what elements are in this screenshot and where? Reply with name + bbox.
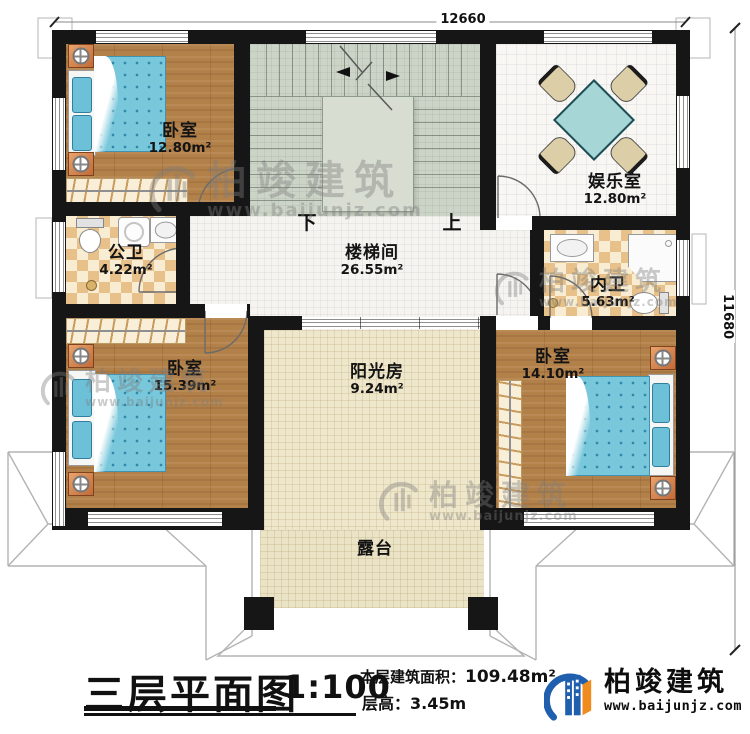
nightstand — [68, 152, 94, 176]
watermark-name: 柏竣建筑 — [85, 369, 224, 396]
terrace-apron-line — [218, 630, 524, 656]
window-left-bath — [53, 222, 65, 292]
floor-drain-icon — [86, 280, 97, 291]
plan-title: 三层平面图 — [84, 662, 299, 720]
eave-box-right — [692, 234, 706, 304]
pillow — [72, 421, 92, 459]
watermark-url: www.baijunjz.com — [539, 296, 678, 309]
floor-area-row: 本层建筑面积：109.48m² — [360, 666, 556, 687]
watermark-name: 柏竣建筑 — [539, 269, 678, 296]
floor-height-row: 层高：3.45m — [362, 690, 466, 714]
bed-mattress — [566, 376, 650, 476]
brand-url: www.baijunjz.com — [604, 698, 742, 714]
wall-sunroom-left — [248, 316, 264, 530]
nightstand — [650, 346, 676, 370]
window-top-bedroom — [96, 31, 188, 43]
dimension-ticks-top — [50, 17, 690, 27]
dimension-top-value: 12660 — [436, 12, 489, 27]
floor-area-value: 109.48m² — [465, 667, 556, 687]
room-label-sunroom: 阳光房 9.24m² — [350, 363, 404, 397]
title-underline-thin — [84, 713, 356, 716]
hallway-floor-left — [190, 216, 250, 304]
title-underline-thick — [84, 706, 276, 711]
window-top-er — [544, 31, 652, 43]
eave-box-left — [36, 218, 52, 298]
room-area: 12.80m² — [149, 141, 212, 156]
terrace-pillar-right — [468, 597, 498, 630]
window-left-bedroom-tl — [53, 98, 65, 170]
pillow — [652, 427, 670, 467]
floor-area-label: 本层建筑面积： — [360, 668, 465, 686]
room-label-entertainment: 娱乐室 12.80m² — [584, 173, 647, 207]
room-area: 12.80m² — [584, 192, 647, 207]
watermark-url: www.baijunjz.com — [429, 510, 578, 524]
watermark-name: 柏竣建筑 — [207, 160, 423, 202]
floor-height-value: 3.45m — [410, 694, 466, 713]
nightstand — [650, 476, 676, 500]
window-left-bedroom-bl — [53, 452, 65, 526]
brand-logo-block: 柏竣建筑 www.baijunjz.com — [544, 668, 742, 726]
room-name: 公卫 — [99, 244, 152, 263]
window-bottom-bedroom-bl — [88, 512, 222, 526]
pillow — [72, 77, 92, 113]
room-label-terrace: 露台 — [357, 540, 393, 559]
watermark-logo-icon — [40, 368, 78, 410]
room-area: 4.22m² — [99, 263, 152, 278]
dimension-right-value: 11680 — [720, 290, 735, 343]
watermark-url: www.baijunjz.com — [207, 202, 423, 221]
room-label-public-bathroom: 公卫 4.22m² — [99, 244, 152, 278]
wall-stub-sunroom — [264, 316, 302, 330]
room-label-bedroom-top-left: 卧室 12.80m² — [149, 122, 212, 156]
bed-headboard — [648, 374, 674, 476]
toilet-bowl — [79, 229, 101, 253]
room-area: 9.24m² — [350, 382, 404, 397]
watermark: 柏竣建筑 www.baijunjz.com — [148, 160, 423, 221]
wall-er-innerbath — [532, 216, 690, 230]
nightstand — [68, 472, 94, 496]
wall-stair-er — [480, 30, 496, 230]
window-top-stair — [306, 31, 436, 43]
wall-hall-bedroom-bl-a — [52, 304, 205, 318]
room-name: 阳光房 — [350, 363, 404, 382]
brand-name: 柏竣建筑 — [604, 668, 742, 698]
watermark-logo-icon — [494, 268, 532, 310]
game-table-set — [526, 52, 658, 184]
nightstand — [68, 344, 94, 368]
floor-height-label: 层高： — [362, 694, 410, 713]
wall-stub-innerbath — [538, 316, 550, 330]
wall-public-bath-right — [176, 216, 190, 304]
stair-up-label: 上 — [442, 208, 461, 235]
floor-plan: 卧室 12.80m² 娱乐室 12.80m² 公卫 4.22m² 楼梯间 26.… — [0, 0, 750, 734]
brand-logo-icon — [544, 668, 596, 726]
room-name: 娱乐室 — [584, 173, 647, 192]
toilet-tank — [76, 218, 104, 228]
pillow — [72, 115, 92, 151]
wall-innerbath-bottom — [592, 316, 690, 330]
room-label-bedroom-bottom-right: 卧室 14.10m² — [522, 348, 585, 382]
closet-bedroom-bottom-left — [66, 318, 186, 344]
room-label-stair-hall: 楼梯间 26.55m² — [341, 244, 404, 278]
terrace-pillar-left — [244, 597, 274, 630]
stair-treads-top — [266, 44, 464, 96]
room-name: 卧室 — [522, 348, 585, 367]
window-right-innerbath — [677, 240, 689, 296]
watermark-logo-icon — [148, 162, 200, 218]
room-area: 14.10m² — [522, 367, 585, 382]
watermark-url: www.baijunjz.com — [85, 396, 224, 409]
room-name: 卧室 — [149, 122, 212, 141]
window-right-er — [677, 96, 689, 168]
watermark: 柏竣建筑 www.baijunjz.com — [494, 268, 678, 310]
sink-icon — [550, 234, 594, 262]
watermark-logo-icon — [378, 478, 422, 526]
room-area: 26.55m² — [341, 263, 404, 278]
sliding-door-sunroom — [302, 317, 480, 329]
room-name: 楼梯间 — [341, 244, 404, 263]
watermark-name: 柏竣建筑 — [429, 480, 578, 510]
watermark: 柏竣建筑 www.baijunjz.com — [378, 478, 578, 526]
pillow — [652, 383, 670, 423]
watermark: 柏竣建筑 www.baijunjz.com — [40, 368, 224, 410]
nightstand — [68, 44, 94, 68]
bed-headboard — [68, 70, 96, 156]
room-name: 露台 — [357, 540, 393, 559]
